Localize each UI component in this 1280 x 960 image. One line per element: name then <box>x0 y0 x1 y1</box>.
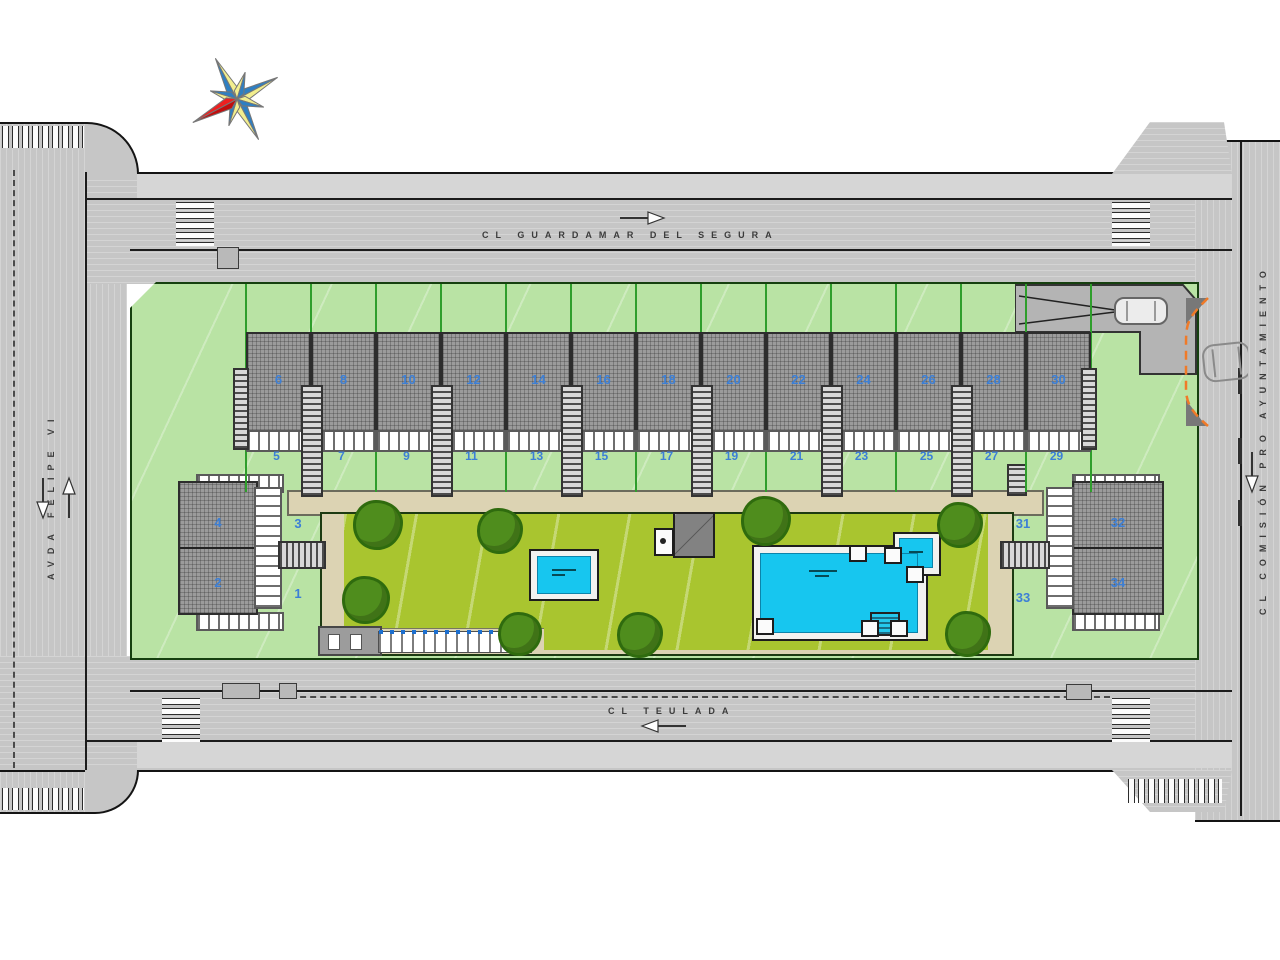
pergola-slot <box>328 634 340 650</box>
street-entrance-turning <box>1178 292 1248 434</box>
arrow-north-icon <box>62 476 76 520</box>
outdoor-shower <box>654 528 674 556</box>
plot-number: 31 <box>1010 516 1036 531</box>
plot-number: 29 <box>1026 449 1087 463</box>
pool-planter <box>861 620 879 637</box>
pool-planter <box>890 620 908 637</box>
car-top-view-icon <box>1115 298 1167 324</box>
pool-label-illegible <box>552 569 576 571</box>
unit-number: 2 <box>180 575 256 590</box>
parking-tick <box>1238 438 1242 464</box>
pool-planter <box>906 566 924 583</box>
plot-number: 1 <box>288 586 308 601</box>
arrow-west-icon <box>640 719 688 733</box>
corner-arc-topleft <box>85 122 139 175</box>
plot-number: 17 <box>636 449 697 463</box>
unit-number: 18 <box>638 372 699 387</box>
unit-number: 14 <box>508 372 569 387</box>
sidewalk-bottom-outer <box>137 742 1232 768</box>
crosswalk-guardamar-east <box>1112 202 1150 246</box>
shared-stair <box>821 385 843 497</box>
sidewalk-top-outer <box>137 174 1232 198</box>
east-building-roof: 32 34 <box>1072 481 1164 615</box>
unit-number: 32 <box>1074 515 1162 530</box>
crosswalk-guardamar-west <box>176 202 214 246</box>
plot-number: 3 <box>288 516 308 531</box>
shared-stair <box>431 385 453 497</box>
curb-left <box>85 172 87 770</box>
east-bridge-walkway <box>1000 541 1050 569</box>
curb-top-outer <box>85 198 1232 200</box>
pool-label-illegible <box>809 570 837 572</box>
plot-number: 9 <box>376 449 437 463</box>
plot-number: 21 <box>766 449 827 463</box>
utility-box <box>279 683 297 699</box>
crosswalk-bottom-left-zebra <box>2 788 84 810</box>
west-building-roof: 4 2 <box>178 481 258 615</box>
row-end-stair <box>1081 368 1097 450</box>
centerline-left-road <box>13 170 15 768</box>
small-pool-water <box>537 556 591 594</box>
pergola <box>318 626 382 656</box>
crosswalk-teulada-east <box>1112 698 1150 742</box>
curb-right <box>1240 142 1242 816</box>
road-topright-stub <box>1112 122 1232 174</box>
unit-number: 22 <box>768 372 829 387</box>
west-bridge-walkway <box>278 541 326 569</box>
street-label-felipe-vi: AVDA FELIPE VI <box>46 370 56 580</box>
east-roof-divider <box>1074 547 1162 549</box>
shared-stair <box>561 385 583 497</box>
shower-drain <box>660 538 666 544</box>
arrow-south-icon <box>36 476 50 520</box>
street-label-teulada: CL TEULADA <box>608 706 735 716</box>
unit-number: 34 <box>1074 575 1162 590</box>
east-garden-stair <box>1007 464 1027 496</box>
utility-box <box>222 683 260 699</box>
street-label-guardamar: CL GUARDAMAR DEL SEGURA <box>482 230 779 240</box>
row-end-stair <box>233 368 249 450</box>
plot-number: 13 <box>506 449 567 463</box>
pool-planter <box>849 545 867 562</box>
unit-number: 26 <box>898 372 959 387</box>
shared-stair <box>951 385 973 497</box>
plot-number: 25 <box>896 449 957 463</box>
car-outline-icon <box>1202 342 1248 383</box>
arrow-east-icon <box>618 211 666 225</box>
pergola-slot <box>350 634 362 650</box>
corner-arc-bottomleft <box>85 770 139 814</box>
pool-planter <box>756 618 774 635</box>
unit-number: 4 <box>180 515 256 530</box>
utility-box <box>1066 684 1092 700</box>
crosswalk-top-left-zebra <box>2 126 84 148</box>
pool-equipment-shed <box>673 512 715 558</box>
plot-number: 33 <box>1010 590 1036 605</box>
site-plan: CL GUARDAMAR DEL SEGURA CL TEULADA AVDA … <box>0 0 1280 960</box>
compass-rose-icon <box>172 42 302 157</box>
crosswalk-teulada-west <box>162 698 200 742</box>
centerline-bottom-road <box>280 696 1110 698</box>
utility-box <box>217 247 239 269</box>
pool-label-illegible <box>552 574 565 576</box>
shared-stair <box>691 385 713 497</box>
unit-number: 30 <box>1028 372 1089 387</box>
unit-number: 6 <box>248 372 309 387</box>
unit-number: 10 <box>378 372 439 387</box>
curb-top-inner <box>130 249 1232 251</box>
pool-planter <box>884 547 902 564</box>
pool-label-illegible <box>815 575 829 577</box>
arrow-south-right-road-icon <box>1245 450 1259 494</box>
crosswalk-bottom-right-zebra <box>1128 779 1222 803</box>
shared-stair <box>301 385 323 497</box>
parking-tick <box>1238 500 1242 526</box>
street-label-comision: CL COMISIÓN PRO AYUNTAMIENTO <box>1258 215 1268 615</box>
west-roof-divider <box>180 547 256 549</box>
plot-number: 5 <box>246 449 307 463</box>
east-side-terraces <box>1046 487 1074 609</box>
